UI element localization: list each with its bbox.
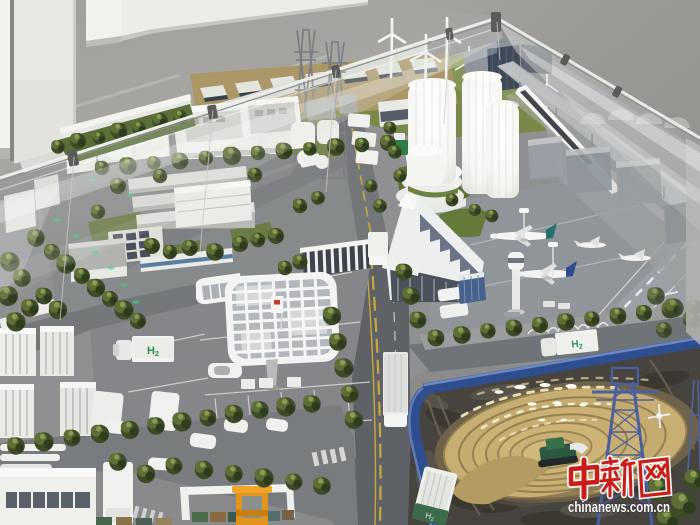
svg-text:chinanews.com.cn: chinanews.com.cn — [568, 499, 670, 516]
